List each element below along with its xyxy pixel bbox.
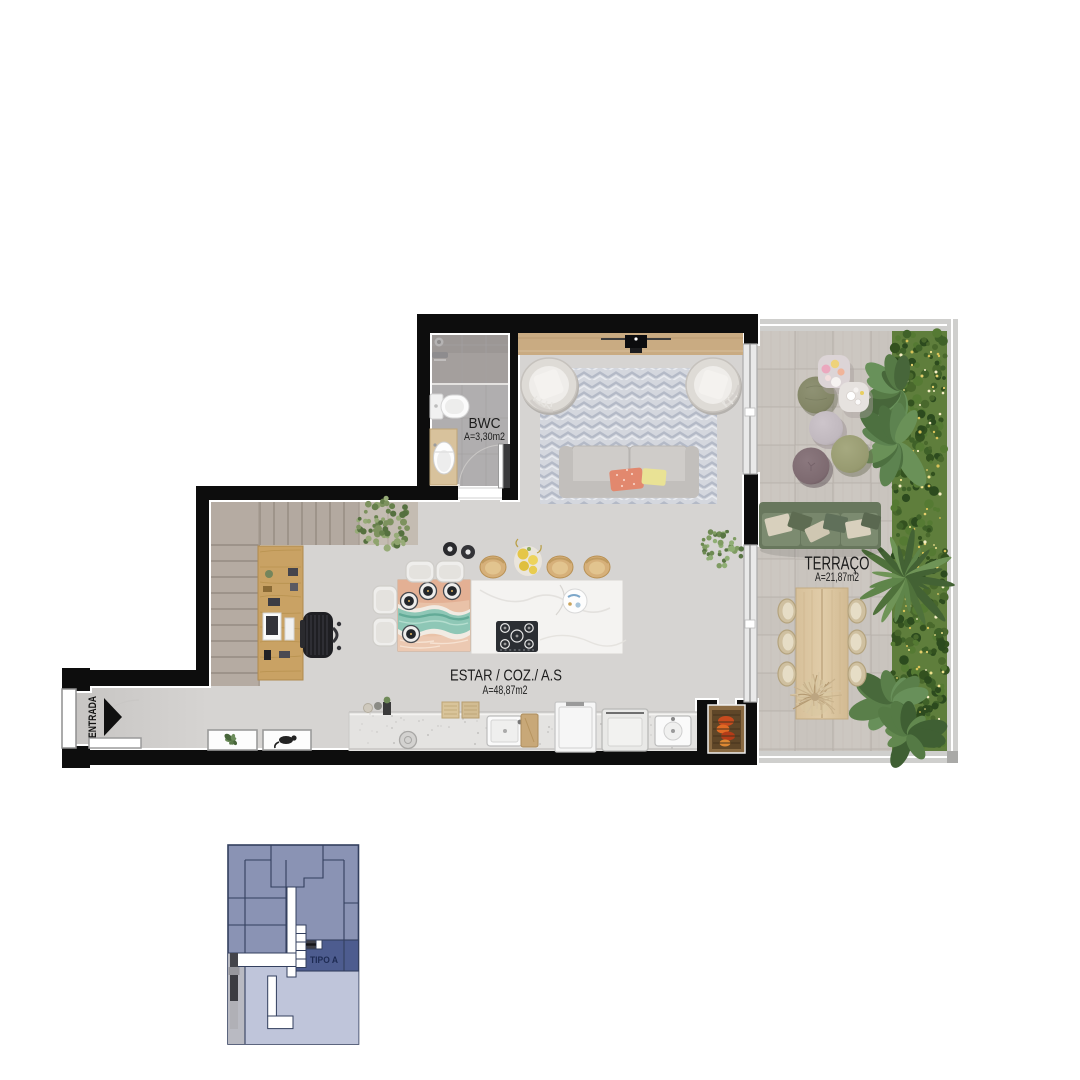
svg-text:A=3,30m2: A=3,30m2 [464, 431, 505, 443]
svg-text:A=48,87m2: A=48,87m2 [483, 685, 528, 697]
svg-text:BWC: BWC [469, 415, 501, 432]
svg-text:ESTAR / COZ./ A.S: ESTAR / COZ./ A.S [450, 668, 562, 685]
svg-text:TIPO A: TIPO A [310, 955, 338, 966]
svg-text:A=21,87m2: A=21,87m2 [815, 571, 859, 584]
svg-text:ENTRADA: ENTRADA [87, 696, 99, 738]
